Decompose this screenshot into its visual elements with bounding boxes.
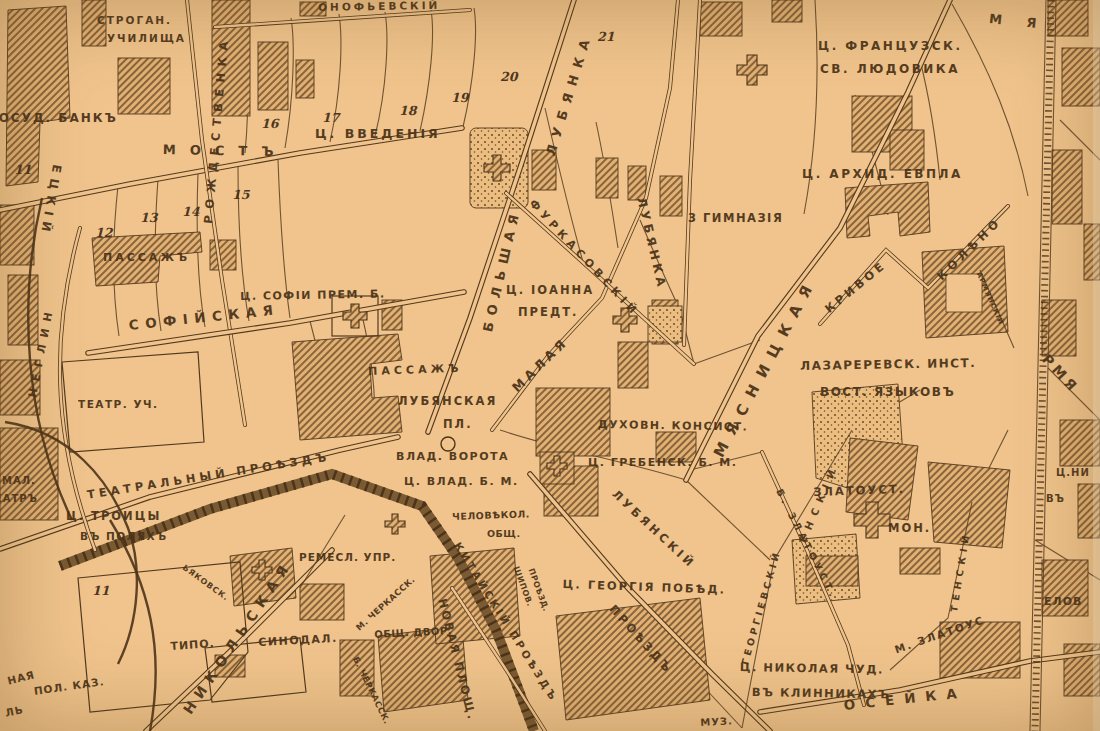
poi-label-ts-ni-partial: Ц.НИ bbox=[1056, 467, 1090, 478]
poi-label-ts-nikolaya-1: Ц. НИКОЛАЯ ЧУД. bbox=[740, 660, 884, 677]
poi-label-stroganov-1: СТРОГАН. bbox=[97, 14, 172, 26]
historic-city-map: СТРОГАН. УЧИЛИЩА ГОСУД. БАНКЪ ПАССАЖЪ Ц.… bbox=[0, 0, 1100, 731]
poi-label-ts-sofii: Ц. СОФІИ ПРЕМ. Б. bbox=[240, 287, 386, 303]
poi-label-gosud-bank: ГОСУД. БАНКЪ bbox=[0, 111, 118, 125]
street-label-kuznetsky-most: МОСТЪ bbox=[163, 142, 288, 159]
poi-label-vu-partial: ВЪ bbox=[1046, 493, 1065, 504]
poi-label-maly-teatr-2: ТЕАТРЪ bbox=[0, 493, 38, 504]
poi-label-passazh-kuznetsky: ПАССАЖЪ bbox=[103, 251, 190, 264]
poi-label-ts-vvedeniya: Ц. ВВЕДЕНІЯ bbox=[315, 126, 441, 141]
poi-label-stroganov-2: УЧИЛИЩА bbox=[107, 32, 186, 44]
poi-label-chelovekolub-2: ОБЩ. bbox=[487, 528, 521, 539]
poi-label-maly-teatr-1: МАЛ. bbox=[2, 475, 36, 486]
poi-label-gimnaziya: 3 ГИМНАЗІЯ bbox=[688, 211, 783, 225]
poi-label-ts-troitsy-2: ВЪ ПОЛЯХЪ bbox=[80, 530, 168, 542]
poi-label-ts-grebensk: Ц. ГРЕБЕНСК. Б. М. bbox=[588, 456, 738, 469]
plot-number-14: 14 bbox=[182, 204, 199, 219]
poi-label-ts-arkhid-evpla: Ц. АРХИД. ЕВПЛА bbox=[802, 167, 963, 181]
poi-label-teatr-uchilishche: ТЕАТР. УЧ. bbox=[78, 398, 159, 410]
poi-label-elov-partial: ЕЛОВ bbox=[1044, 595, 1082, 608]
poi-label-ts-troitsy-1: Ц. ТРОИЦЫ bbox=[66, 509, 161, 523]
poi-label-remeslennaya-uprava: РЕМЕСЛ. УПР. bbox=[299, 551, 396, 563]
poi-label-muz-partial: МУЗ. bbox=[700, 715, 733, 728]
poi-label-zlatoust-mon-2: МОН. bbox=[888, 521, 931, 535]
plot-number-18: 18 bbox=[399, 103, 416, 118]
plot-number-17: 17 bbox=[322, 110, 339, 125]
poi-label-ts-frantsuzsk-2: СВ. ЛЮДОВИКА bbox=[820, 62, 960, 76]
plot-number-20: 20 bbox=[500, 69, 517, 84]
poi-label-lubyanskaya-pl-2: ПЛ. bbox=[443, 417, 473, 431]
plot-number-16: 16 bbox=[261, 116, 278, 131]
plot-number-19: 19 bbox=[451, 90, 468, 105]
poi-label-vlad-vorota: ВЛАД. ВОРОТА bbox=[396, 450, 509, 463]
plot-number-13: 13 bbox=[140, 210, 157, 225]
poi-label-ts-ioanna-2: ПРЕДТ. bbox=[518, 305, 578, 319]
poi-label-ts-vlad: Ц. ВЛАД. Б. М. bbox=[404, 475, 519, 488]
plot-number-21: 21 bbox=[597, 29, 614, 44]
plot-number-11: 11 bbox=[14, 162, 31, 177]
plot-number-15: 15 bbox=[232, 187, 249, 202]
plot-number-11-south: 11 bbox=[92, 583, 109, 598]
poi-label-lazarevsky-2: ВОСТ. ЯЗЫКОВЪ bbox=[820, 385, 955, 399]
street-label-varsonofyevsky: ОНОФЬЕВСКІЙ bbox=[318, 0, 440, 13]
poi-label-ts-ioanna-1: Ц. ІОАННА bbox=[506, 283, 594, 297]
poi-label-ts-frantsuzsk-1: Ц. ФРАНЦУЗСК. bbox=[818, 39, 962, 53]
poi-label-lubyanskaya-pl-1: ЛУБЯНСКАЯ bbox=[398, 394, 497, 408]
plot-number-12: 12 bbox=[95, 225, 112, 240]
